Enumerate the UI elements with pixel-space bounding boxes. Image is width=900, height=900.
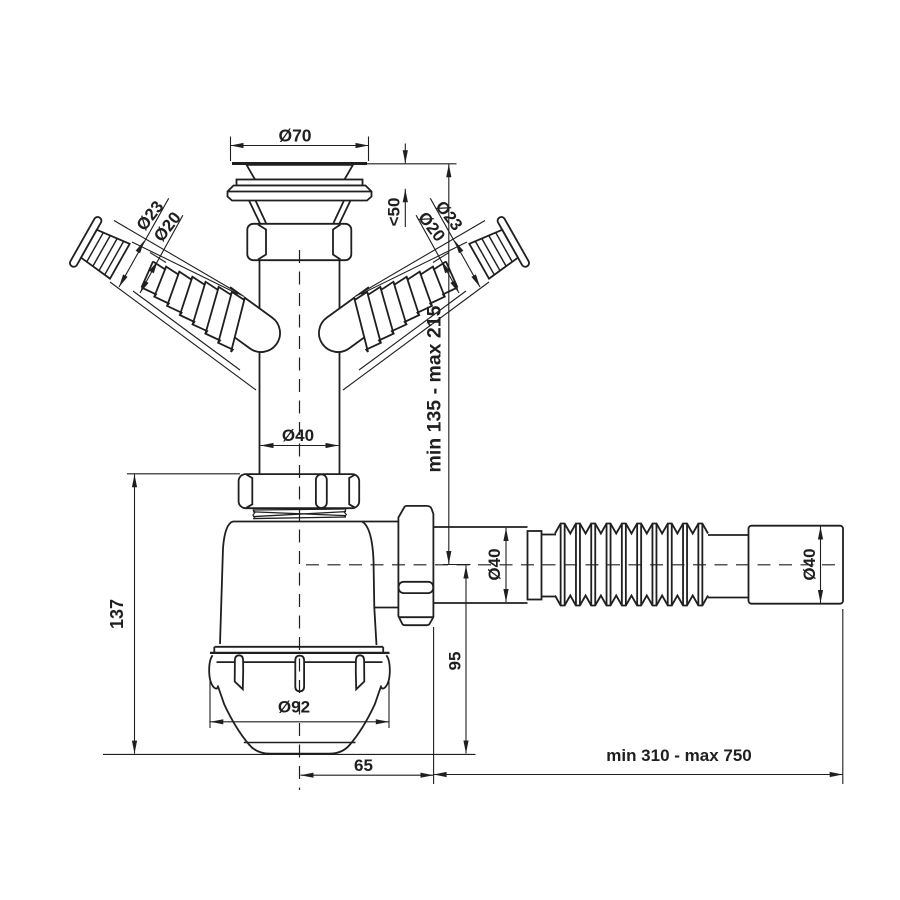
svg-text:min 310 - max 750: min 310 - max 750 bbox=[606, 746, 752, 765]
svg-text:65: 65 bbox=[354, 756, 373, 775]
svg-text:137: 137 bbox=[107, 599, 127, 629]
svg-text:95: 95 bbox=[446, 652, 465, 671]
svg-text:<50: <50 bbox=[385, 198, 404, 227]
svg-text:min 135 - max 215: min 135 - max 215 bbox=[424, 305, 446, 472]
svg-text:Ø70: Ø70 bbox=[278, 126, 311, 146]
svg-text:Ø40: Ø40 bbox=[800, 548, 819, 580]
svg-text:Ø40: Ø40 bbox=[485, 548, 504, 580]
svg-text:Ø40: Ø40 bbox=[282, 426, 314, 445]
svg-text:Ø92: Ø92 bbox=[278, 698, 310, 717]
